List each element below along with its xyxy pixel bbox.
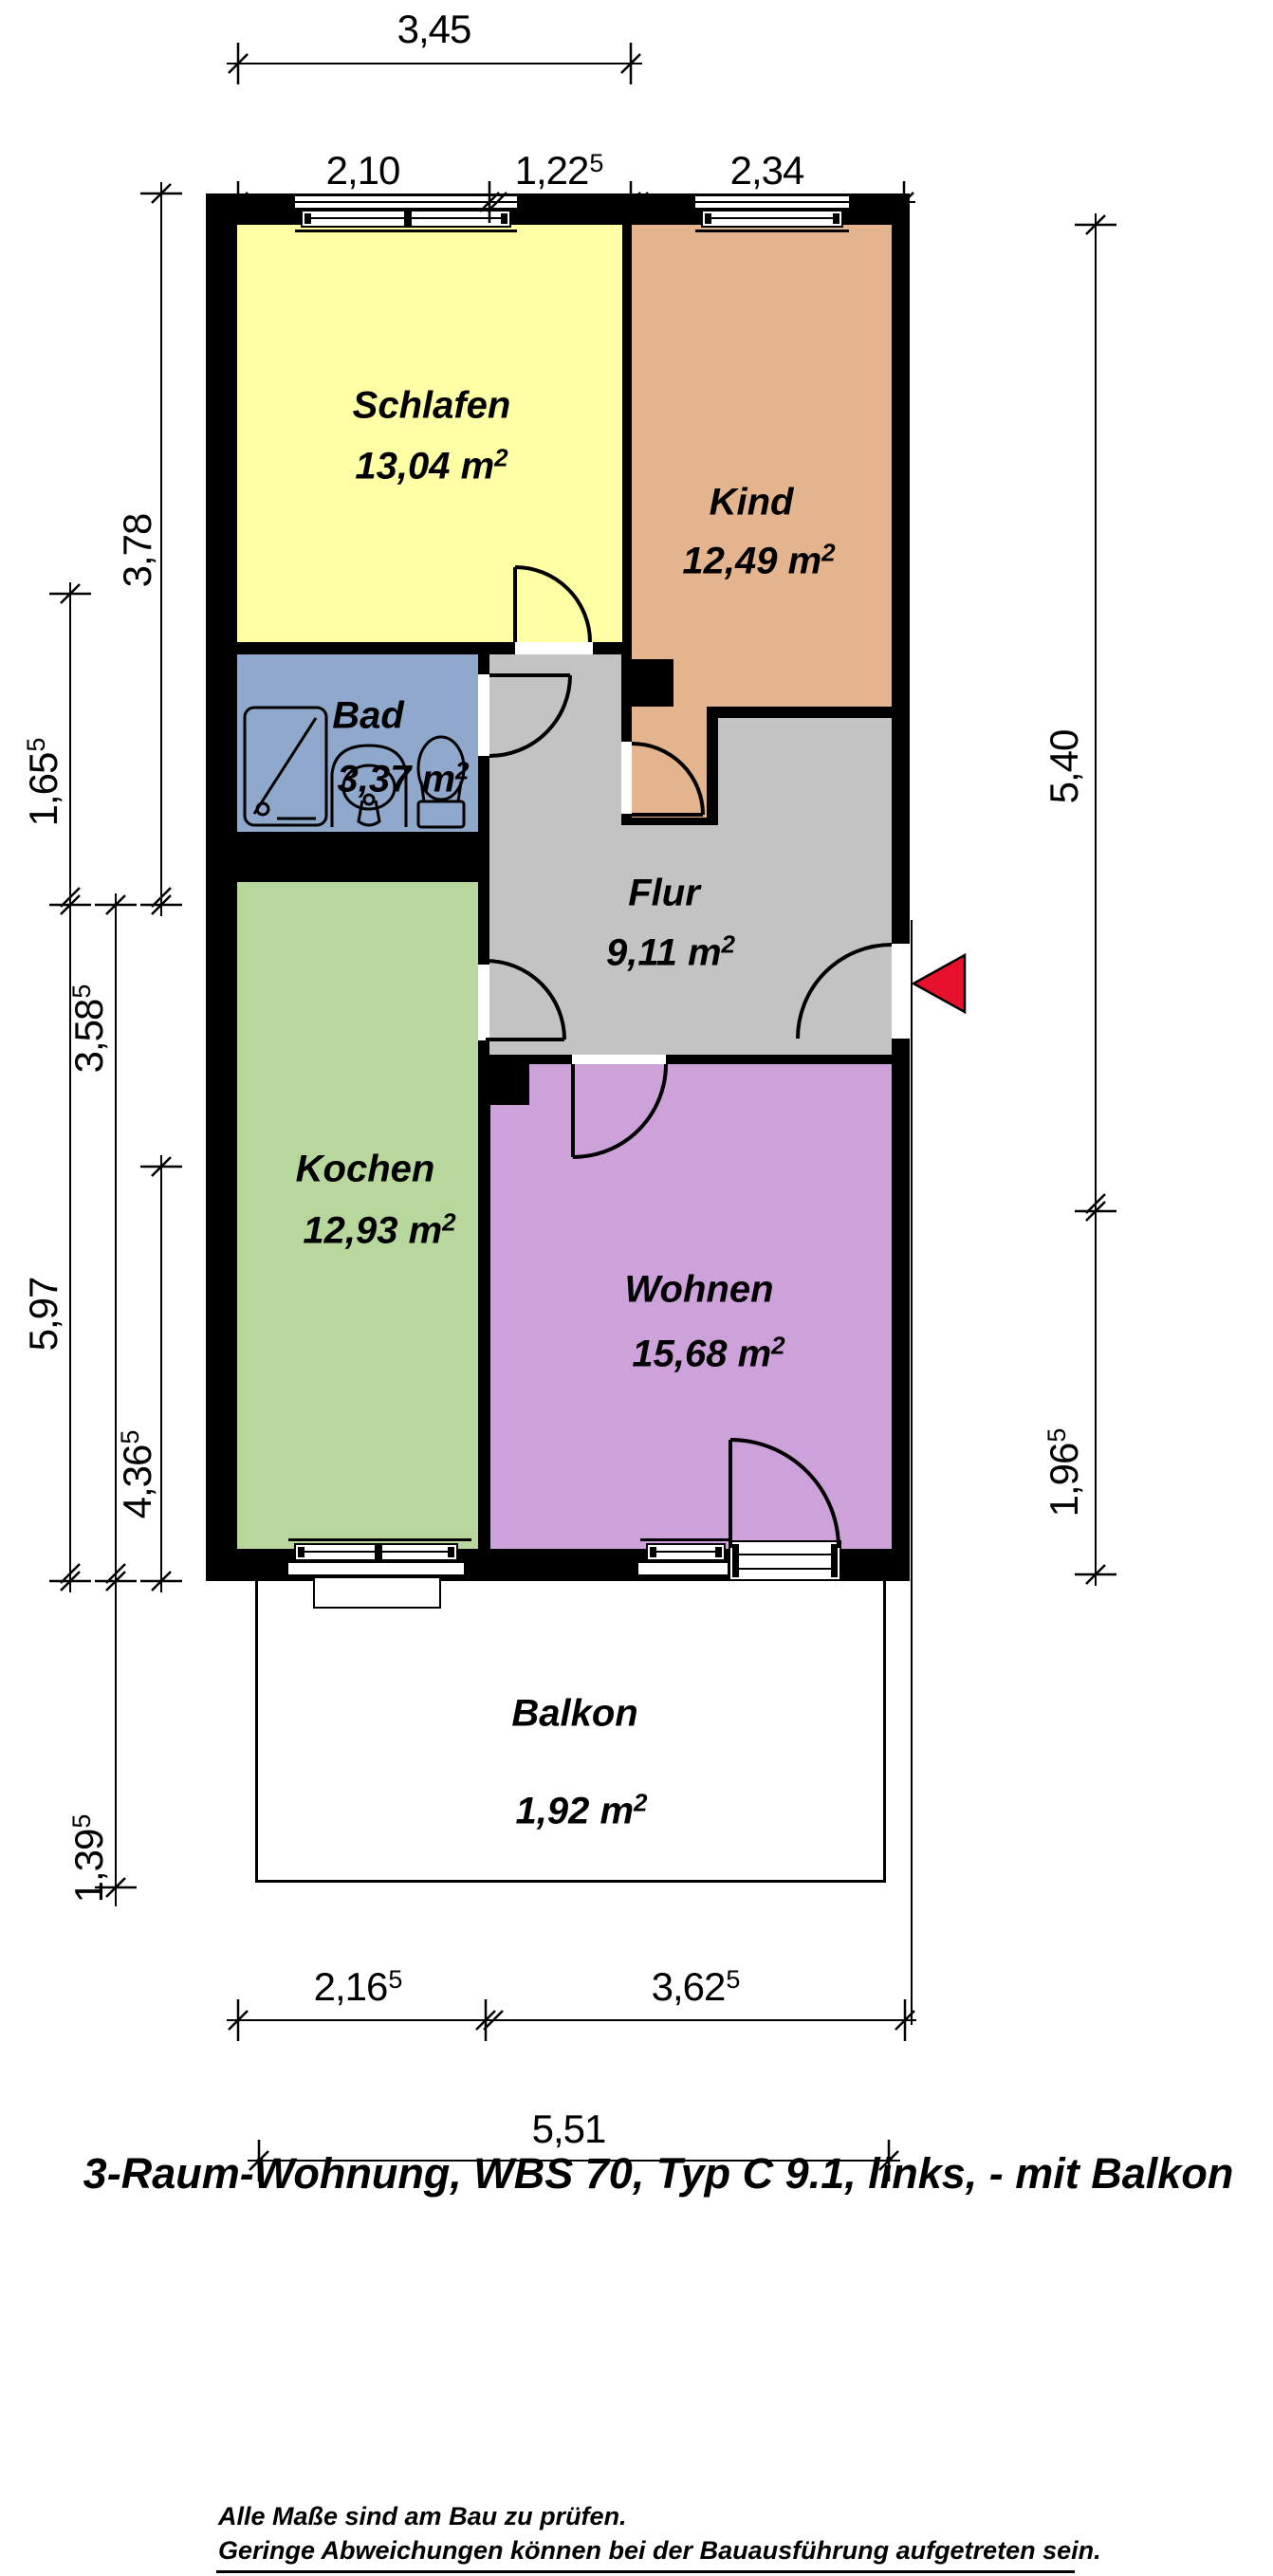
door-arc-schlafen — [515, 567, 590, 642]
plan-title: 3-Raum-Wohnung, WBS 70, Typ C 9.1, links… — [83, 2149, 1234, 2199]
sink-drain — [364, 795, 374, 804]
door-arc-entry — [798, 945, 892, 1039]
door-arc-kind — [632, 744, 703, 815]
door-arc-bad — [489, 675, 570, 756]
door-arc-balkon — [730, 1440, 839, 1548]
footer-rule — [216, 2570, 1075, 2573]
door-arc-kochen — [486, 961, 564, 1040]
sink-basin — [343, 765, 395, 809]
entrance-arrow-icon — [913, 955, 965, 1012]
toilet-tank — [418, 801, 464, 827]
floorplan-page: 3,45 2,10 1,225 2,34 3,78 1,655 3,585 5,… — [0, 0, 1273, 2576]
toilet-bowl — [418, 737, 464, 800]
dim-ticks — [49, 43, 1116, 2181]
door-arc-wohnen — [573, 1064, 666, 1157]
footer-note-1: Alle Maße sind am Bau zu prüfen. — [218, 2502, 627, 2531]
shower-diagonal — [254, 718, 316, 814]
footer-note-2: Geringe Abweichungen können bei der Baua… — [218, 2536, 1101, 2566]
